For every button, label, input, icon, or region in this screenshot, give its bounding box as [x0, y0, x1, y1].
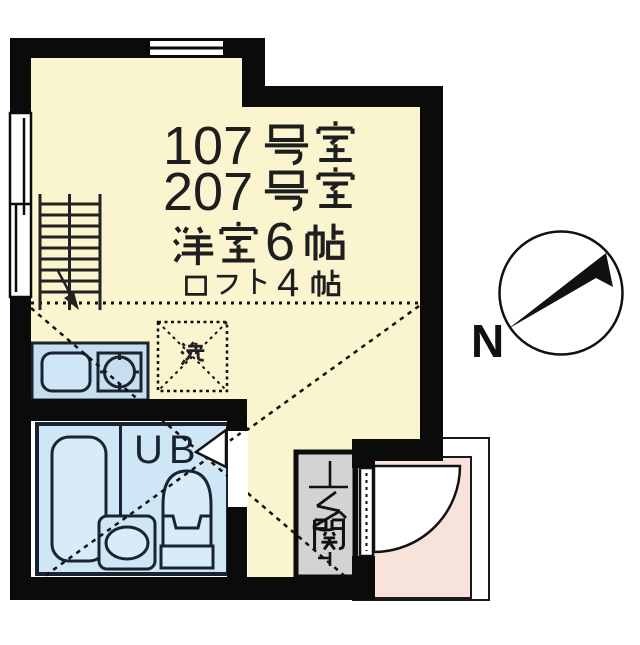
svg-text:207: 207	[163, 162, 253, 222]
svg-text:UB: UB	[134, 428, 202, 472]
svg-text:N: N	[471, 315, 504, 367]
svg-text:4: 4	[277, 261, 299, 305]
